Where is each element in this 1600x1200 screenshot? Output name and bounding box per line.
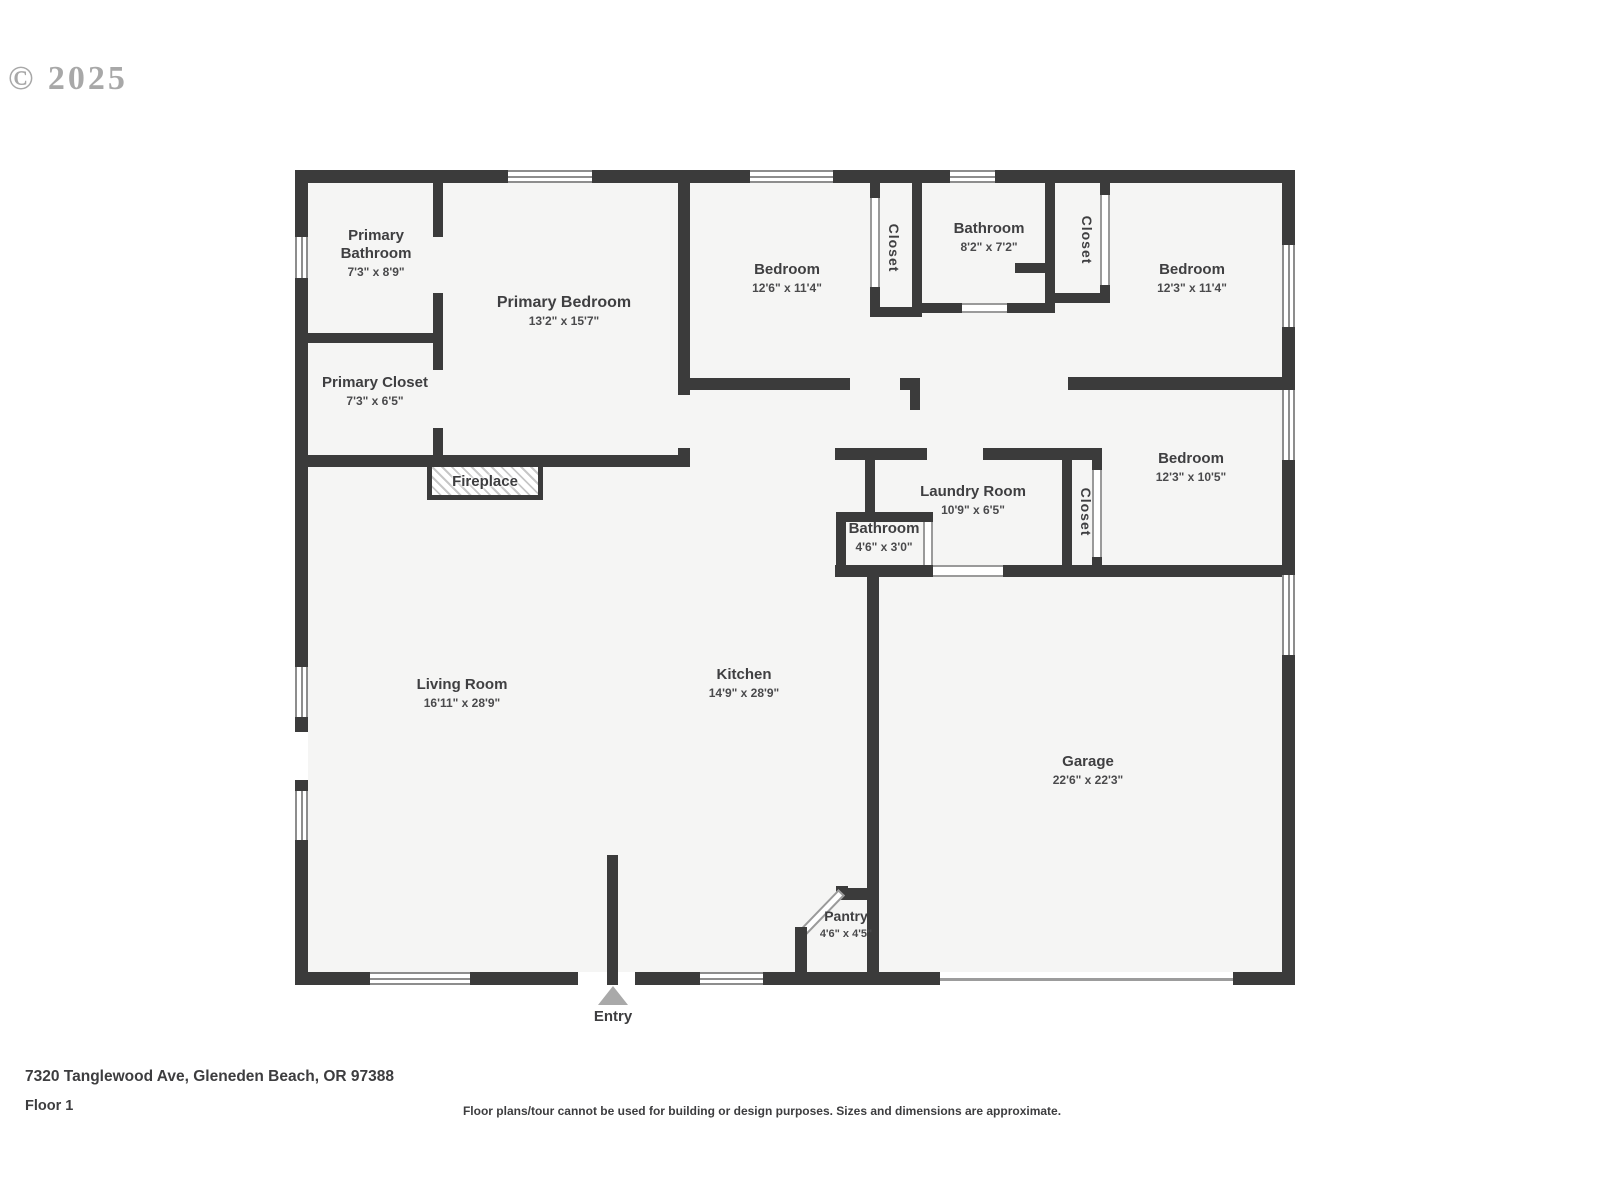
room-dims: 4'6" x 4'5" — [820, 926, 872, 942]
wall-segment — [865, 460, 875, 512]
room-label-garage: Garage 22'6" x 22'3" — [1053, 753, 1123, 788]
room-dims: 8'2" x 7'2" — [954, 239, 1025, 255]
room-name: Primary Bedroom — [497, 294, 631, 312]
room-name: Primary Bathroom — [321, 227, 431, 263]
wall-segment — [295, 170, 308, 985]
wall-segment — [678, 183, 690, 395]
room-dims: 7'3" x 8'9" — [321, 264, 431, 280]
room-dims: 12'3" x 10'5" — [1156, 469, 1226, 485]
room-label-pantry: Pantry 4'6" x 4'5" — [820, 907, 872, 942]
floor-plan: Fireplace — [295, 170, 1295, 985]
room-name: Bathroom — [849, 520, 920, 538]
door-opening — [295, 732, 308, 780]
window — [295, 791, 308, 840]
wall-segment — [678, 448, 690, 467]
window — [1282, 390, 1295, 460]
room-name: Bedroom — [1156, 450, 1226, 468]
room-name: Bedroom — [752, 261, 822, 279]
wall-segment — [983, 448, 1102, 460]
window — [1282, 575, 1295, 655]
room-label-bathroom-top: Bathroom 8'2" x 7'2" — [954, 220, 1025, 255]
room-label-primary-bathroom: Primary Bathroom 7'3" x 8'9" — [321, 227, 431, 280]
wall-segment — [1092, 448, 1102, 470]
room-dims: 12'6" x 11'4" — [752, 280, 822, 296]
room-name: Garage — [1053, 753, 1123, 771]
window — [295, 667, 308, 717]
wall-segment — [900, 378, 920, 390]
wall-segment — [607, 855, 618, 985]
room-dims: 13'2" x 15'7" — [497, 313, 631, 329]
wall-segment — [433, 293, 443, 370]
wall-segment — [1062, 460, 1072, 573]
window — [508, 170, 592, 183]
wall-segment — [795, 935, 807, 985]
window — [750, 170, 833, 183]
entry-arrow-icon — [598, 986, 628, 1005]
closet-door — [1100, 195, 1110, 285]
room-dims: 7'3" x 6'5" — [322, 393, 428, 409]
room-name: Laundry Room — [920, 483, 1026, 501]
wall-segment — [1100, 285, 1110, 303]
garage-door — [940, 972, 1233, 985]
wall-segment — [910, 390, 920, 410]
room-label-bedroom-top-right: Bedroom 12'3" x 11'4" — [1157, 261, 1227, 296]
room-name: Bedroom — [1157, 261, 1227, 279]
room-name: Bathroom — [954, 220, 1025, 238]
room-label-primary-closet: Primary Closet 7'3" x 6'5" — [322, 374, 428, 409]
wall-segment — [1068, 377, 1282, 390]
wall-segment — [1007, 303, 1050, 313]
room-label-laundry-room: Laundry Room 10'9" x 6'5" — [920, 483, 1026, 518]
window — [370, 972, 470, 985]
room-dims: 22'6" x 22'3" — [1053, 772, 1123, 788]
wall-segment — [922, 303, 962, 313]
room-dims: 12'3" x 11'4" — [1157, 280, 1227, 296]
window — [295, 237, 308, 278]
disclaimer-text: Floor plans/tour cannot be used for buil… — [463, 1104, 1061, 1118]
window — [1282, 245, 1295, 327]
wall-segment — [690, 378, 850, 390]
wall-segment — [870, 183, 880, 198]
floor-indicator: Floor 1 — [25, 1098, 73, 1114]
door-opening — [962, 303, 1007, 313]
room-name: Living Room — [417, 676, 508, 694]
wall-segment — [1100, 183, 1110, 195]
room-label-bathroom-small: Bathroom 4'6" x 3'0" — [849, 520, 920, 555]
wall-segment — [912, 183, 922, 317]
wall-segment — [835, 448, 927, 460]
room-dims: 14'9" x 28'9" — [709, 685, 779, 701]
room-label-primary-bedroom: Primary Bedroom 13'2" x 15'7" — [497, 294, 631, 329]
room-dims: 10'9" x 6'5" — [920, 502, 1026, 518]
wall-segment — [433, 183, 443, 237]
closet-label: Closet — [886, 224, 902, 273]
copyright-watermark: © 2025 — [8, 60, 128, 98]
room-label-bedroom-top-middle: Bedroom 12'6" x 11'4" — [752, 261, 822, 296]
room-label-living-room: Living Room 16'11" x 28'9" — [417, 676, 508, 711]
closet-label: Closet — [1078, 488, 1094, 537]
door-opening — [933, 565, 1003, 577]
room-name: Kitchen — [709, 666, 779, 684]
room-label-bedroom-mid-right: Bedroom 12'3" x 10'5" — [1156, 450, 1226, 485]
wall-segment — [308, 333, 443, 343]
room-name: Primary Closet — [322, 374, 428, 392]
floor-plan-page: © 2025 Fireplace — [0, 0, 1600, 1200]
fireplace: Fireplace — [427, 462, 543, 500]
window — [950, 170, 995, 183]
fireplace-label: Fireplace — [452, 473, 518, 490]
wall-segment — [835, 565, 933, 577]
property-address: 7320 Tanglewood Ave, Gleneden Beach, OR … — [25, 1068, 394, 1086]
door-opening — [923, 522, 933, 565]
window — [700, 972, 763, 985]
entry-label: Entry — [594, 1008, 632, 1025]
wall-segment — [1003, 565, 1282, 577]
room-dims: 16'11" x 28'9" — [417, 695, 508, 711]
closet-label: Closet — [1079, 216, 1095, 265]
room-label-kitchen: Kitchen 14'9" x 28'9" — [709, 666, 779, 701]
closet-door — [870, 198, 880, 287]
room-name: Pantry — [820, 907, 872, 925]
room-dims: 4'6" x 3'0" — [849, 539, 920, 555]
